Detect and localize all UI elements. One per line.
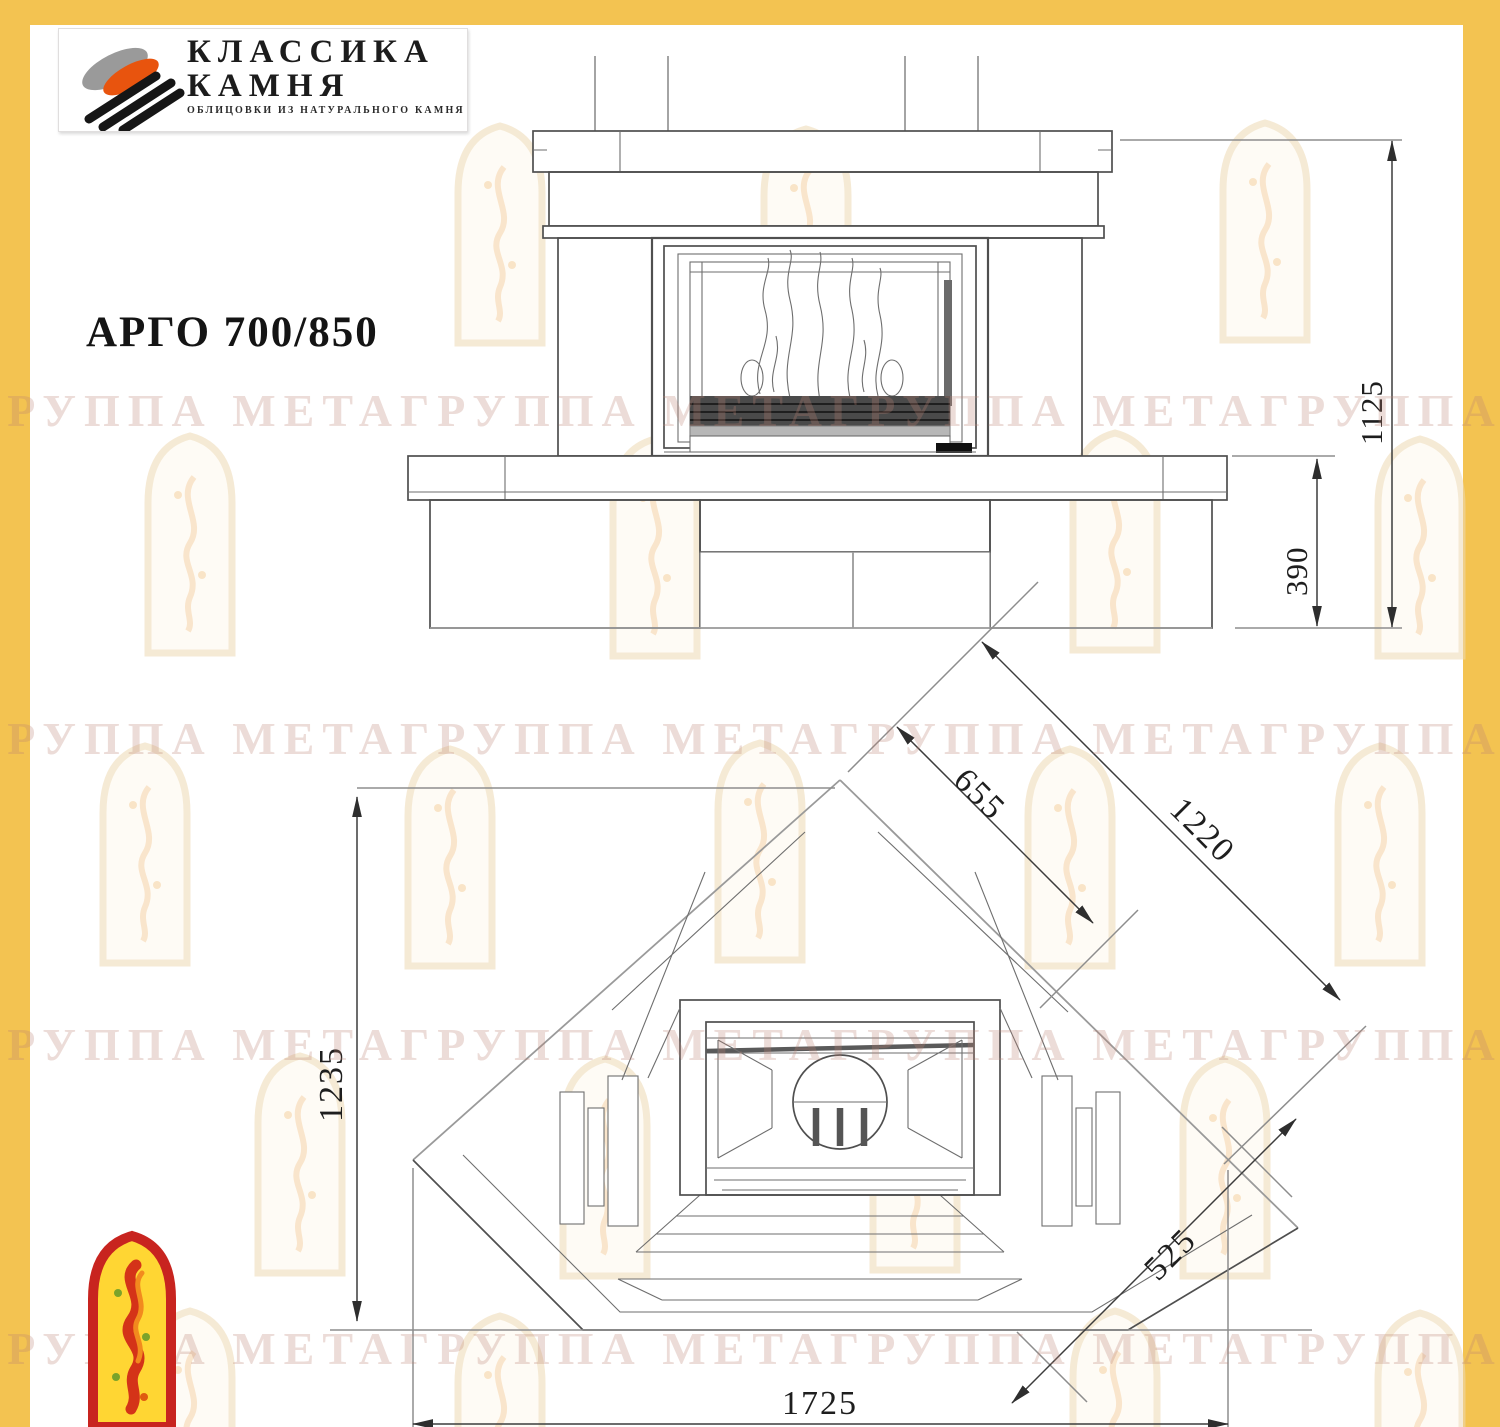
front-dimensions: 1125 390 xyxy=(1120,140,1402,628)
dim-total-width: 1725 xyxy=(782,1385,858,1422)
dim-total-height: 1125 xyxy=(1354,380,1389,445)
hearth-steps xyxy=(618,1195,1022,1300)
base-right-bricks xyxy=(990,500,1212,628)
left-brick-pier xyxy=(558,238,652,456)
hearth-shelf xyxy=(408,456,1227,500)
dim-corner-to-face: 655 xyxy=(946,761,1012,827)
chimney-lines xyxy=(595,56,978,131)
dim-depth: 1235 xyxy=(313,1046,350,1122)
right-brick-pier xyxy=(988,238,1082,456)
base-left-bricks xyxy=(430,500,700,628)
dim-wall-length: 1220 xyxy=(1162,791,1242,871)
meta-firebird-logo xyxy=(86,1227,178,1427)
frieze-lip xyxy=(543,226,1104,238)
page: 1125 390 xyxy=(0,0,1500,1427)
base-niche xyxy=(700,552,990,628)
plan-view: 1235 655 1220 525 1725 xyxy=(313,582,1366,1427)
fireplace-technical-drawing: 1125 390 xyxy=(0,0,1500,1427)
door-hinge-strip xyxy=(944,280,952,406)
base-slat-band xyxy=(700,500,990,552)
frieze-slat-band xyxy=(549,172,1098,226)
firebox-insert-plan xyxy=(680,1000,1000,1195)
dim-base-height: 390 xyxy=(1279,547,1314,597)
front-elevation-view: 1125 390 xyxy=(408,56,1402,628)
